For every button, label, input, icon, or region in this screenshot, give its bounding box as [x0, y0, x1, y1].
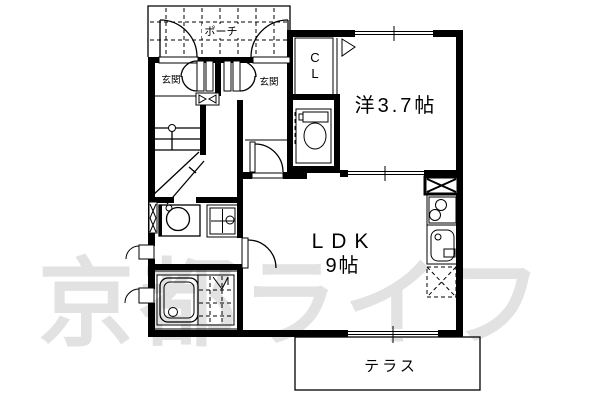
door-arc — [255, 144, 283, 172]
washroom-window-icon — [149, 202, 157, 233]
window — [348, 166, 424, 181]
washbasin-icon — [159, 205, 200, 236]
wall-cabinet-icon — [425, 177, 458, 194]
opening-triangle-icon — [342, 39, 355, 56]
porch-area: ポーチ — [148, 6, 290, 57]
entrance-left-area: 玄関 — [155, 61, 219, 105]
floor-plan-drawing: 京都ライフ ポーチ — [0, 0, 600, 400]
stove-icon — [429, 197, 456, 223]
western-room-label: 洋3.7帖 — [355, 94, 438, 117]
entrance-right-label: 玄関 — [259, 76, 278, 88]
closet-door-arc — [240, 76, 255, 91]
stairs-icon — [152, 125, 204, 205]
closet-label-c: C — [310, 50, 319, 65]
window — [355, 26, 433, 41]
entrance-left-label: 玄関 — [161, 74, 180, 86]
ldk-label: LDK — [312, 230, 377, 253]
western-room-area: 洋3.7帖 — [348, 26, 437, 181]
door-arc — [251, 20, 288, 57]
ldk-size-label: 9帖 — [325, 254, 360, 277]
closet-label-l: L — [311, 66, 318, 81]
toilet-icon — [299, 112, 328, 149]
shoe-cabinet-icon — [196, 93, 219, 105]
terrace-label: テラス — [364, 358, 418, 375]
closet-cl-area: C L — [295, 38, 355, 95]
closet-door-arc — [182, 76, 197, 91]
watermark-text: 京都ライフ — [38, 251, 548, 358]
washing-machine-icon — [207, 205, 238, 237]
entrance-right-area: 玄関 — [224, 61, 287, 140]
porch-label: ポーチ — [205, 25, 238, 38]
toilet-room — [295, 109, 331, 163]
floor-plan-canvas: 京都ライフ ポーチ — [0, 0, 600, 400]
hall-door — [250, 142, 283, 178]
